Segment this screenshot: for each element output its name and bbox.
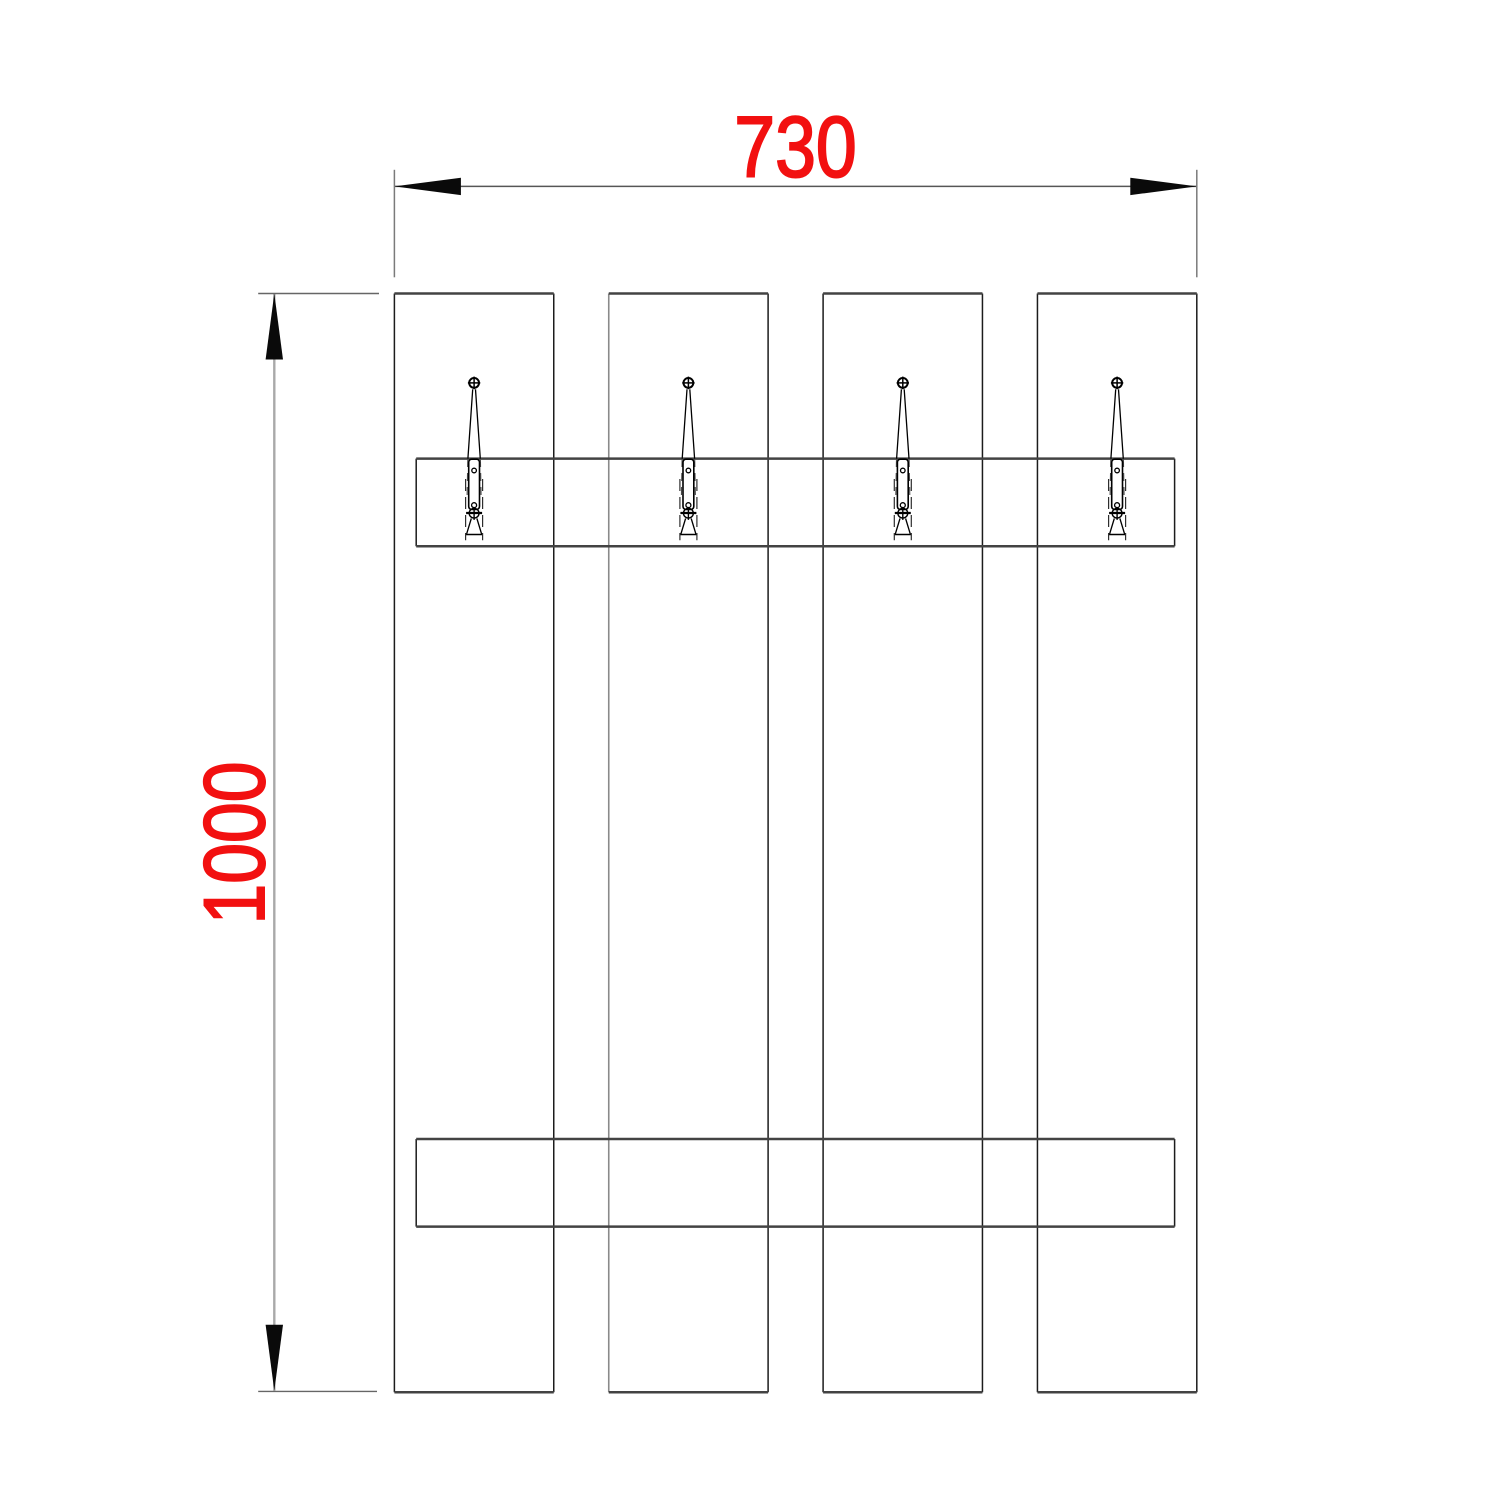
svg-text:1000: 1000 <box>187 762 283 925</box>
svg-text:730: 730 <box>734 99 857 195</box>
